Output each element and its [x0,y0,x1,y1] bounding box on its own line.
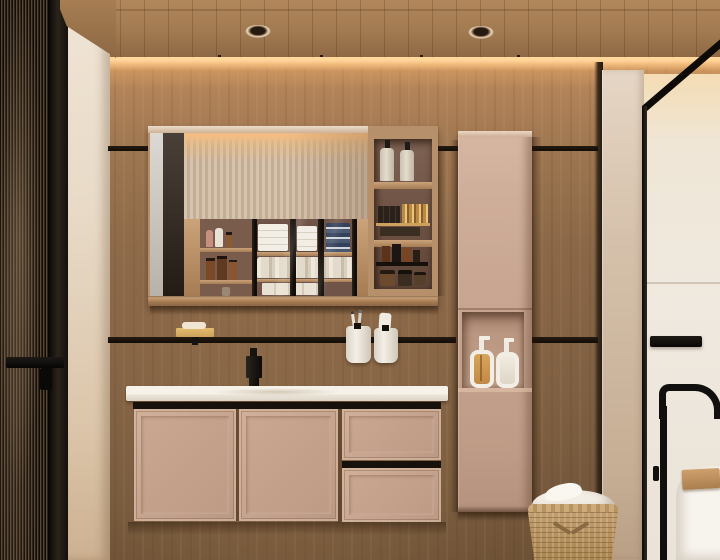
soap-bar [182,322,206,329]
bottle [215,228,223,247]
pump-spout [504,338,514,342]
vanity-door [134,409,236,521]
fluted-glass-door [0,0,48,560]
door-seam [458,308,532,310]
soap-dispenser [470,350,494,388]
laundry-basket [522,484,624,560]
hanging-rail [108,337,456,343]
door-gap [338,409,342,522]
cup-clip [382,325,389,331]
shelf [374,182,432,189]
pump-bottle [400,150,414,181]
small-vase [222,287,230,296]
gold-minis [402,204,428,223]
shower-glass-edge [642,106,647,560]
amber-bottle [206,258,215,281]
amber-bottle [403,248,411,262]
wall-reveal-line [108,146,148,151]
amber-bottle [229,260,237,280]
soap-dispenser [496,352,519,388]
dark-boxes [378,206,400,223]
sink-basin [212,388,342,396]
vanity-drawer [342,468,441,522]
small-bottle [413,250,420,262]
black-riser [376,262,428,266]
black-bottle [392,244,401,262]
door-handle-icon [6,357,64,368]
niche-lip [458,388,532,392]
cabinet-shadow [438,150,446,296]
brass-tray [376,223,430,226]
soap-tray [176,328,214,337]
cabinet-bottom-rail [148,296,438,306]
recessed-light-icon [468,26,494,39]
recessed-light-icon [245,25,271,38]
door-gap [236,409,239,521]
glass-handle [650,336,702,347]
tall-cabinet [458,131,532,512]
door-lock [40,368,52,390]
vanity [126,344,448,544]
cabinet-niche [462,312,524,388]
dispenser-tube [480,355,482,381]
jar [414,272,426,285]
bath-tray [682,468,720,490]
amber-bottle [217,256,227,281]
tub-filler-spout [659,384,720,419]
cabinet-shadow [532,137,542,510]
shelf-interior [374,139,432,289]
door-frame [48,0,70,560]
mirror-reflection-door [163,133,184,296]
glass-sheen [252,219,357,296]
door-panel [141,416,229,514]
counter-reveal-handle [133,402,441,409]
cabinet-shadow [458,512,532,521]
tub-filler-lever [653,466,659,481]
cup-clip [354,323,361,329]
cream-wall-strip [68,0,110,560]
open-shelf-tower [368,126,438,296]
vanity-shadow [128,522,446,535]
mirror-cabinet [148,126,438,306]
faucet-head [246,356,262,378]
cabinet-shadow [150,306,438,315]
shelf-side [184,219,200,296]
cabinet-shadow [450,140,458,512]
shelf [200,248,252,252]
pump-bottle [380,148,394,181]
mirror-reflection-fluted-panel [184,133,370,219]
drawer-pull [342,461,441,468]
mirror-reflection-wall [150,133,163,296]
bathroom-photo [0,0,720,560]
cosmetic-shelf [200,219,252,296]
jar [398,270,412,286]
cabinet-shelf-band [184,219,370,296]
shelf [200,280,252,284]
bottle [206,230,213,247]
basket-body [528,512,618,560]
tub-filler-pipe [660,406,667,560]
vanity-door [239,409,338,521]
tile-seam [646,282,720,284]
door-panel [246,416,331,514]
lower-row [380,227,420,236]
jar [380,270,395,286]
vanity-drawer [342,409,441,460]
pump-spout [479,336,490,340]
cabinet-top-edge [458,131,532,137]
drawer-panel [349,416,434,453]
amber-bottle [382,246,390,262]
drawer-panel [349,475,434,515]
